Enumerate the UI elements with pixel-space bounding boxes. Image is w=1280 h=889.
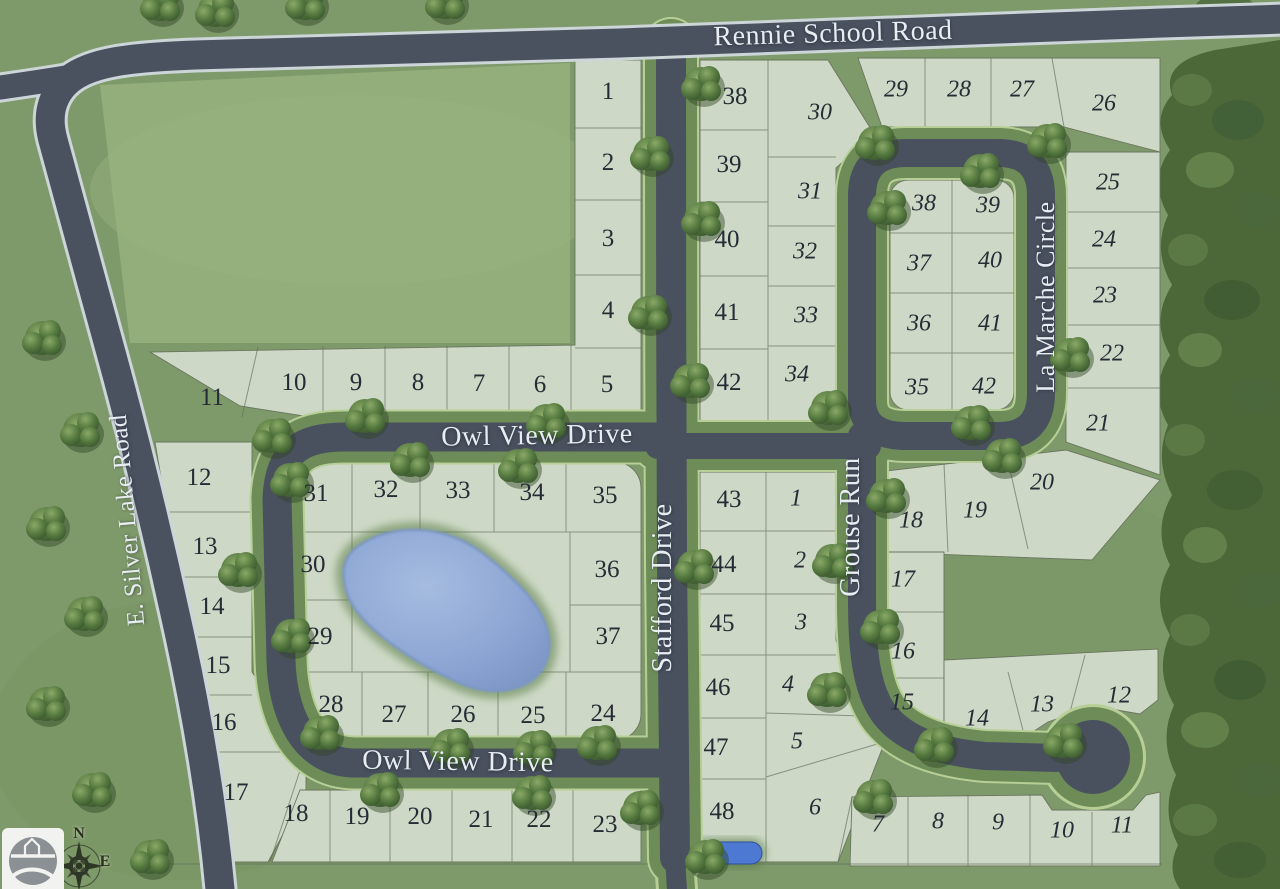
block-south <box>272 790 641 862</box>
field-highlight <box>90 95 610 285</box>
plat-map: Rennie School Road E. Silver Lake Road O… <box>0 0 1280 889</box>
road-stafford-south <box>675 856 677 889</box>
block-lamarche-east <box>1066 152 1160 475</box>
plat-map-canvas <box>0 0 1280 889</box>
forest <box>1158 0 1280 889</box>
builder-logo <box>2 828 64 889</box>
